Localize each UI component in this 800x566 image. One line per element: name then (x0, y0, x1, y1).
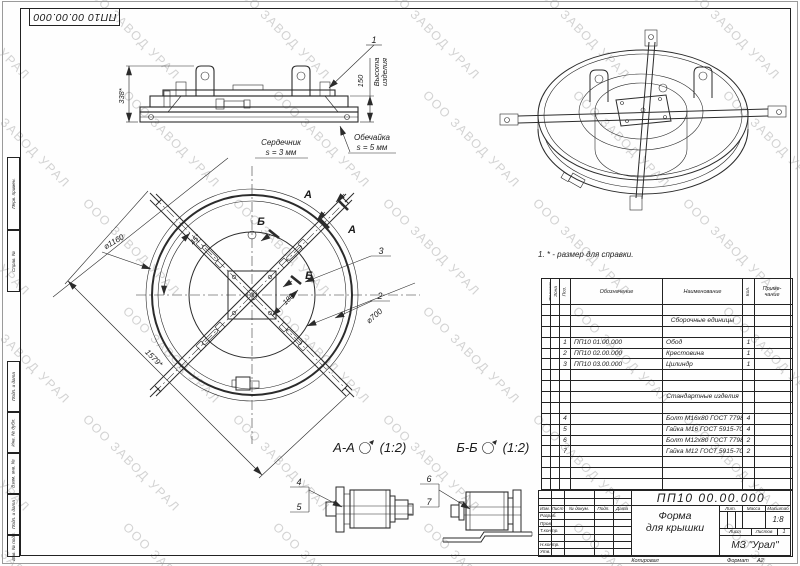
edge-box-sign-date-1: Подп. и дата (7, 361, 20, 412)
spec-cell (571, 457, 663, 467)
spec-cell (571, 436, 663, 446)
spec-cell (560, 327, 571, 337)
spec-cell (571, 446, 663, 456)
edge-box-label: Инв. № дубл. (11, 418, 16, 446)
spec-cell (560, 479, 571, 489)
spec-cell (743, 381, 755, 391)
footer-format-value: А2 (757, 558, 764, 564)
edge-box-label: Инв. № подл. (11, 532, 16, 561)
spec-cell (755, 468, 789, 478)
spec-cell: Крестовина (663, 349, 743, 359)
spec-cell: ПП10 01.00.000 (571, 338, 663, 348)
tb-title-line1: Форма (659, 510, 692, 522)
spec-cell (663, 403, 743, 413)
spec-table-header: Формат Зона Поз. Обозначение Наименовани… (542, 279, 792, 305)
spec-cell: Болт М12х80 ГОСТ 7798-70 (663, 436, 743, 446)
spec-row (542, 457, 792, 468)
spec-cell (663, 468, 743, 478)
spec-cell: Обод (663, 338, 743, 348)
spec-cell (551, 479, 560, 489)
spec-cell (542, 327, 551, 337)
drawing-sheet: ООО ЗАВОД УРАЛООО ЗАВОД УРАЛООО ЗАВОД УР… (0, 0, 800, 566)
tb-title-line2: для крышки (646, 522, 704, 534)
spec-cell (663, 327, 743, 337)
spec-cell (551, 436, 560, 446)
spec-cell (571, 403, 663, 413)
spec-cell (551, 457, 560, 467)
spec-cell (551, 359, 560, 369)
edge-box-label: Справ. № (11, 251, 16, 272)
spec-cell (542, 446, 551, 456)
spec-row: 4Болт М16х80 ГОСТ 7798-704 (542, 414, 792, 425)
spec-col-name: Наименование (663, 279, 743, 304)
spec-cell (755, 425, 789, 435)
spec-cell (542, 425, 551, 435)
spec-cell (542, 359, 551, 369)
spec-cell: 2 (743, 436, 755, 446)
spec-row: 3ПП10 03.00.000Цилиндр1 (542, 359, 792, 370)
spec-cell (743, 403, 755, 413)
spec-cell (542, 381, 551, 391)
spec-row (542, 468, 792, 479)
spec-cell: 2 (743, 446, 755, 456)
tb-header-massa: Масса (742, 505, 765, 511)
edge-box-label: Подп. и дата (11, 372, 16, 401)
spec-cell (571, 414, 663, 424)
spec-cell (560, 316, 571, 326)
tb-header-data: Дата (613, 505, 631, 512)
edge-box-label: Подп. и дата (11, 500, 16, 529)
spec-col-designation: Обозначение (571, 279, 663, 304)
edge-box-sign-date-2: Подп. и дата (7, 494, 20, 535)
spec-cell (571, 370, 663, 380)
tb-header-izm: Изм. (539, 505, 551, 512)
spec-cell (551, 381, 560, 391)
tb-row-nkontr: Н.контр. (540, 542, 559, 547)
title-block: Изм. Лист № докум. Подп. Дата Разраб. Пр… (538, 490, 793, 557)
spec-cell: 4 (743, 425, 755, 435)
spec-cell (743, 457, 755, 467)
spec-cell (755, 381, 789, 391)
spec-cell (560, 381, 571, 391)
edge-box-inv-dupl: Инв. № дубл. (7, 412, 20, 453)
tb-header-list: Лист (551, 505, 564, 512)
spec-cell (551, 327, 560, 337)
spec-cell (743, 327, 755, 337)
spec-cell (663, 305, 743, 315)
tb-scale-value: 1:8 (765, 511, 791, 528)
spec-cell (542, 403, 551, 413)
spec-cell (551, 446, 560, 456)
spec-cell (542, 338, 551, 348)
spec-cell (542, 479, 551, 489)
edge-box-ref-number: Справ. № (7, 230, 20, 292)
spec-cell (542, 316, 551, 326)
edge-box-label: Взам. инв. № (11, 459, 16, 487)
spec-cell (755, 414, 789, 424)
spec-cell (560, 457, 571, 467)
spec-cell: Болт М16х80 ГОСТ 7798-70 (663, 414, 743, 424)
spec-col-zone: Зона (551, 279, 560, 304)
spec-col-pos: Поз. (560, 279, 571, 304)
tb-row-utv: Утв. (540, 549, 550, 554)
spec-cell (551, 403, 560, 413)
spec-cell (551, 349, 560, 359)
spec-cell (743, 316, 755, 326)
spec-cell: ПП10 02.00.000 (571, 349, 663, 359)
spec-col-qty: Кол. (743, 279, 755, 304)
spec-row: 5Гайка М16 ГОСТ 5915-704 (542, 425, 792, 436)
edge-box-label: Перв. примен. (11, 178, 16, 209)
spec-cell (542, 305, 551, 315)
spec-cell (755, 370, 789, 380)
spec-cell (755, 316, 789, 326)
spec-cell (542, 457, 551, 467)
edge-box-first-use: Перв. примен. (7, 157, 20, 230)
spec-cell: 6 (560, 436, 571, 446)
spec-cell: 4 (560, 414, 571, 424)
spec-cell (542, 349, 551, 359)
spec-cell (542, 436, 551, 446)
spec-cell: 1 (743, 359, 755, 369)
spec-cell (755, 338, 789, 348)
tb-company: МЗ "Урал" (719, 535, 791, 555)
spec-cell (571, 381, 663, 391)
spec-cell (755, 305, 789, 315)
spec-cell (571, 392, 663, 402)
spec-row: 2ПП10 02.00.000Крестовина1 (542, 349, 792, 360)
spec-rows: Сборочные единицы1ПП10 01.00.000Обод12ПП… (542, 305, 792, 489)
spec-cell: Цилиндр (663, 359, 743, 369)
footer-format-label: Формат (727, 558, 749, 564)
tb-doc-number: ПП10 00.00.000 (631, 491, 791, 505)
spec-cell (663, 457, 743, 467)
spec-cell: 7 (560, 446, 571, 456)
tb-sheets-value: 1 (777, 528, 791, 535)
spec-cell (755, 359, 789, 369)
spec-cell (551, 392, 560, 402)
spec-col-note: Приме-чание (755, 279, 789, 304)
spec-cell (560, 403, 571, 413)
spec-cell (551, 425, 560, 435)
tb-row-razrab: Разраб. (540, 513, 557, 518)
spec-cell (542, 370, 551, 380)
spec-cell: ПП10 03.00.000 (571, 359, 663, 369)
spec-cell (560, 370, 571, 380)
tb-header-podp: Подп. (594, 505, 613, 512)
tb-row-tkontr: Т.контр. (540, 528, 559, 533)
spec-cell (560, 305, 571, 315)
spec-cell (551, 316, 560, 326)
spec-col-format: Формат (542, 279, 551, 304)
spec-cell (755, 457, 789, 467)
spec-cell (743, 392, 755, 402)
spec-cell (560, 392, 571, 402)
tb-header-list2: Лист (719, 528, 751, 535)
spec-row: 7Гайка М12 ГОСТ 5915-702 (542, 446, 792, 457)
spec-table: Формат Зона Поз. Обозначение Наименовани… (541, 278, 793, 490)
spec-cell (542, 468, 551, 478)
spec-row (542, 305, 792, 316)
edge-box-inv-orig: Инв. № подл. (7, 535, 20, 557)
edge-box-vzam-inv: Взам. инв. № (7, 453, 20, 494)
spec-cell: 1 (743, 338, 755, 348)
spec-cell: Стандартные изделия (663, 392, 743, 402)
footer-copied: Копировал (615, 558, 675, 564)
spec-cell (743, 479, 755, 489)
spec-cell (663, 370, 743, 380)
spec-cell: 5 (560, 425, 571, 435)
tb-title: Форма для крышки (631, 507, 719, 537)
tb-header-lit: Лит. (719, 505, 742, 511)
spec-cell (755, 349, 789, 359)
top-stamp-number: ПП10 00.00.000 (33, 11, 117, 23)
spec-cell: 2 (560, 349, 571, 359)
spec-row: Стандартные изделия (542, 392, 792, 403)
spec-cell (755, 327, 789, 337)
tb-row-prov: Пров. (540, 521, 552, 526)
spec-cell (571, 305, 663, 315)
spec-cell (755, 436, 789, 446)
spec-cell (571, 425, 663, 435)
top-stamp: ПП10 00.00.000 (29, 8, 120, 26)
spec-cell (743, 305, 755, 315)
spec-cell: 1 (560, 338, 571, 348)
spec-cell (755, 392, 789, 402)
spec-cell (542, 414, 551, 424)
spec-cell: 3 (560, 359, 571, 369)
spec-cell (755, 403, 789, 413)
spec-cell (571, 316, 663, 326)
spec-cell (551, 338, 560, 348)
spec-cell: Гайка М12 ГОСТ 5915-70 (663, 446, 743, 456)
spec-row (542, 403, 792, 414)
spec-cell (571, 468, 663, 478)
spec-cell (571, 327, 663, 337)
spec-cell (551, 414, 560, 424)
spec-cell (755, 479, 789, 489)
spec-cell (663, 479, 743, 489)
spec-cell (560, 468, 571, 478)
tb-header-listov: Листов (751, 528, 777, 535)
spec-cell (542, 392, 551, 402)
spec-cell (551, 305, 560, 315)
tb-header-doc: № докум. (564, 505, 594, 512)
spec-cell: Гайка М16 ГОСТ 5915-70 (663, 425, 743, 435)
spec-cell (663, 381, 743, 391)
spec-row: 6Болт М12х80 ГОСТ 7798-702 (542, 436, 792, 447)
spec-cell (755, 446, 789, 456)
spec-row: Сборочные единицы (542, 316, 792, 327)
spec-cell (551, 468, 560, 478)
spec-cell (743, 468, 755, 478)
spec-cell (743, 370, 755, 380)
spec-cell: 4 (743, 414, 755, 424)
spec-row (542, 381, 792, 392)
spec-row (542, 479, 792, 489)
spec-row: 1ПП10 01.00.000Обод1 (542, 338, 792, 349)
spec-row (542, 370, 792, 381)
spec-cell (551, 370, 560, 380)
spec-cell: 1 (743, 349, 755, 359)
spec-cell (571, 479, 663, 489)
spec-row (542, 327, 792, 338)
spec-cell: Сборочные единицы (663, 316, 743, 326)
